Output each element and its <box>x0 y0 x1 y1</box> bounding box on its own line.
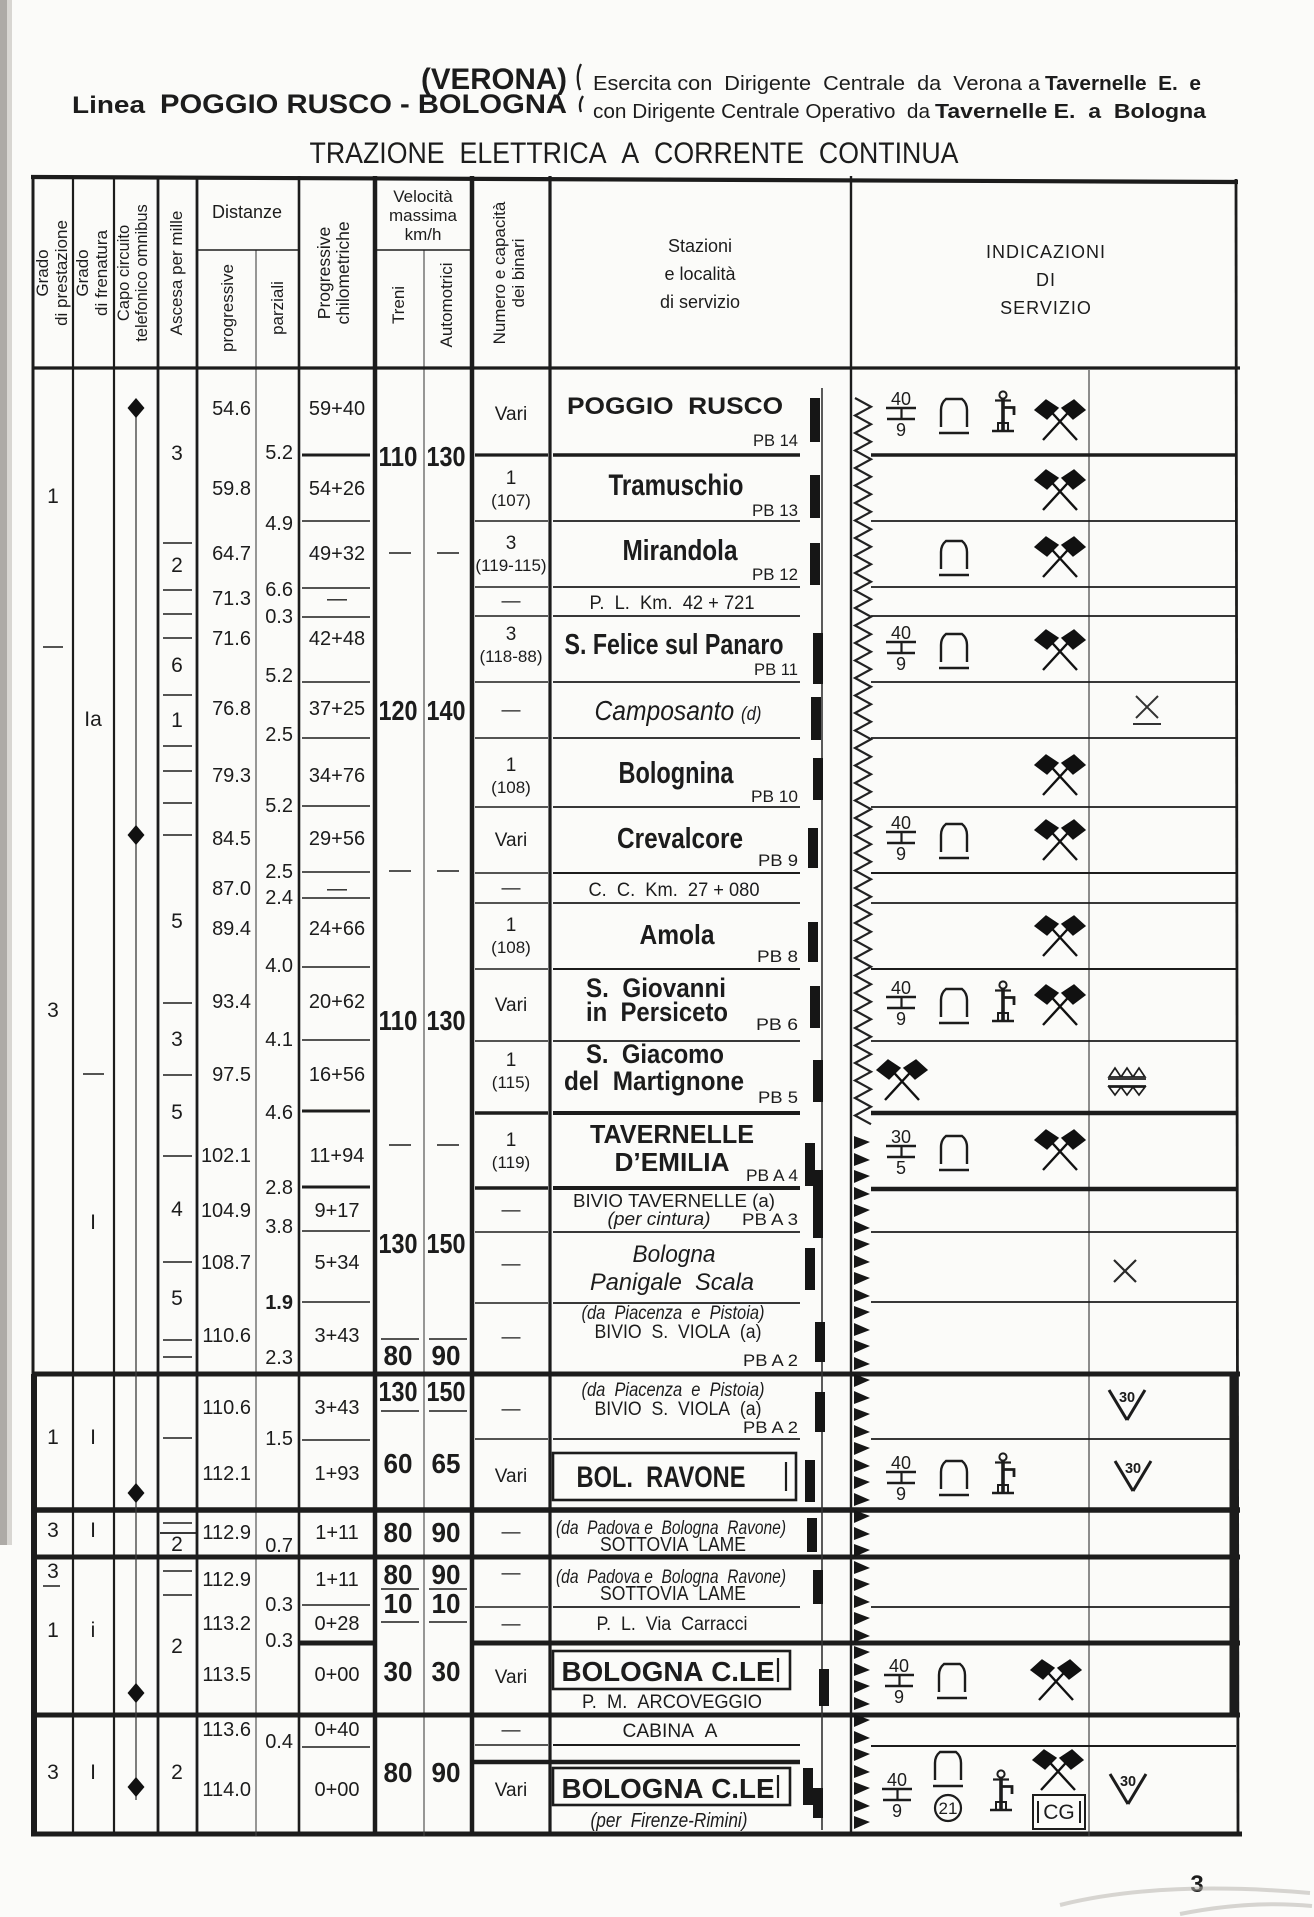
svg-text:i: i <box>91 1619 96 1642</box>
svg-text:Mirandola: Mirandola <box>623 535 739 567</box>
svg-text:113.2: 113.2 <box>202 1613 251 1635</box>
svg-text:130: 130 <box>427 441 466 472</box>
svg-text:(107): (107) <box>491 491 531 510</box>
svg-text:5: 5 <box>171 1287 183 1310</box>
svg-text:con Dirigente Centrale Operati: con Dirigente Centrale Operativo da <box>593 101 931 123</box>
svg-text:del Martignone: del Martignone <box>564 1066 744 1096</box>
svg-text:5+34: 5+34 <box>314 1252 359 1274</box>
svg-text:71.6: 71.6 <box>212 628 251 650</box>
svg-text:2: 2 <box>171 1635 183 1658</box>
svg-text:59.8: 59.8 <box>212 478 251 500</box>
svg-text:65: 65 <box>432 1448 461 1479</box>
svg-text:PB 12: PB 12 <box>752 565 798 584</box>
svg-text:0.3: 0.3 <box>265 606 293 628</box>
svg-text:—: — <box>502 1522 521 1543</box>
svg-text:CABINA A: CABINA A <box>623 1721 718 1742</box>
svg-text:4.0: 4.0 <box>265 955 293 977</box>
svg-text:—: — <box>502 700 521 721</box>
svg-text:4.9: 4.9 <box>265 513 293 535</box>
svg-text:PB 9: PB 9 <box>758 851 798 870</box>
svg-text:(119-115): (119-115) <box>475 556 546 575</box>
svg-text:2: 2 <box>171 1761 183 1784</box>
svg-text:10: 10 <box>384 1588 413 1619</box>
svg-text:PB 10: PB 10 <box>751 787 798 806</box>
svg-text:D’EMILIA: D’EMILIA <box>615 1147 730 1177</box>
svg-text:Stazionie localitàdi servizio: Stazionie localitàdi servizio <box>660 236 740 312</box>
svg-text:PB 11: PB 11 <box>754 660 798 679</box>
svg-text:34+76: 34+76 <box>309 765 365 787</box>
svg-text:TAVERNELLE: TAVERNELLE <box>590 1119 754 1149</box>
svg-text:PB 5: PB 5 <box>758 1088 798 1107</box>
svg-text:97.5: 97.5 <box>212 1064 251 1086</box>
svg-text:90: 90 <box>432 1559 461 1590</box>
svg-text:1: 1 <box>506 1050 517 1071</box>
svg-text:PB 14: PB 14 <box>753 431 798 450</box>
svg-text:84.5: 84.5 <box>212 828 251 850</box>
svg-text:1: 1 <box>506 915 517 936</box>
svg-text:90: 90 <box>432 1340 461 1371</box>
svg-text:parziali: parziali <box>268 281 287 335</box>
svg-text:(108): (108) <box>491 938 531 957</box>
svg-text:Tavernelle E. e: Tavernelle E. e <box>1045 73 1201 95</box>
svg-text:—: — <box>502 1399 521 1420</box>
svg-text:2.5: 2.5 <box>265 724 293 746</box>
svg-text:P. M. ARCOVEGGIO: P. M. ARCOVEGGIO <box>582 1692 762 1713</box>
svg-text:59+40: 59+40 <box>309 398 365 420</box>
svg-text:PB A 2: PB A 2 <box>743 1351 798 1370</box>
svg-text:I: I <box>90 1519 96 1542</box>
svg-text:I: I <box>90 1761 96 1784</box>
svg-text:1.9: 1.9 <box>265 1292 293 1314</box>
svg-text:20+62: 20+62 <box>309 991 365 1013</box>
svg-text:1: 1 <box>506 468 517 489</box>
svg-text:progressive: progressive <box>218 264 237 352</box>
svg-text:120: 120 <box>379 695 418 726</box>
svg-text:1: 1 <box>506 755 517 776</box>
svg-text:3: 3 <box>47 1761 59 1784</box>
svg-text:—: — <box>502 591 521 612</box>
svg-text:10: 10 <box>432 1588 461 1619</box>
svg-text:0.3: 0.3 <box>265 1630 293 1652</box>
svg-text:79.3: 79.3 <box>212 765 251 787</box>
svg-text:—: — <box>502 1254 521 1275</box>
svg-text:114.0: 114.0 <box>202 1779 251 1801</box>
svg-text:4.1: 4.1 <box>265 1029 293 1051</box>
svg-text:130: 130 <box>379 1228 418 1259</box>
svg-text:2.3: 2.3 <box>265 1347 293 1369</box>
svg-text:80: 80 <box>384 1757 413 1788</box>
svg-text:9+17: 9+17 <box>314 1200 359 1222</box>
svg-text:80: 80 <box>384 1517 413 1548</box>
svg-text:—: — <box>502 878 521 899</box>
svg-text:90: 90 <box>432 1517 461 1548</box>
svg-text:60: 60 <box>384 1448 413 1479</box>
svg-text:1: 1 <box>47 1619 59 1642</box>
svg-text:64.7: 64.7 <box>212 543 251 565</box>
svg-text:(per cintura): (per cintura) <box>608 1209 711 1229</box>
svg-text:30: 30 <box>384 1656 413 1687</box>
svg-text:5.2: 5.2 <box>265 442 293 464</box>
svg-text:102.1: 102.1 <box>201 1145 251 1167</box>
svg-text:3: 3 <box>47 1519 59 1542</box>
svg-text:—: — <box>502 1200 521 1221</box>
svg-text:112.9: 112.9 <box>202 1569 251 1591</box>
svg-text:4: 4 <box>171 1198 183 1221</box>
svg-text:(per Firenze-Rimini): (per Firenze-Rimini) <box>591 1810 748 1832</box>
svg-text:29+56: 29+56 <box>309 828 365 850</box>
svg-text:Vari: Vari <box>495 830 527 851</box>
svg-text:(108): (108) <box>491 778 531 797</box>
svg-text:4.6: 4.6 <box>265 1102 293 1124</box>
svg-text:BIVIO S. VIOLA (a): BIVIO S. VIOLA (a) <box>595 1399 762 1420</box>
svg-text:110.6: 110.6 <box>202 1325 251 1347</box>
svg-text:PB A 4: PB A 4 <box>746 1166 798 1185</box>
svg-text:Automotrici: Automotrici <box>437 262 456 347</box>
svg-text:P. L. Via Carracci: P. L. Via Carracci <box>597 1614 748 1635</box>
svg-text:113.6: 113.6 <box>202 1719 251 1741</box>
svg-text:24+66: 24+66 <box>309 918 365 940</box>
svg-text:49+32: 49+32 <box>309 543 365 565</box>
svg-text:S. Giacomo: S. Giacomo <box>586 1039 724 1069</box>
svg-text:1: 1 <box>506 1130 517 1151</box>
svg-text:POGGIO RUSCO - BOLOGNA: POGGIO RUSCO - BOLOGNA <box>160 89 567 119</box>
svg-text:3: 3 <box>1190 1871 1203 1898</box>
svg-text:113.5: 113.5 <box>202 1664 251 1686</box>
svg-text:3: 3 <box>171 1028 183 1051</box>
svg-text:BIVIO TAVERNELLE (a): BIVIO TAVERNELLE (a) <box>573 1191 775 1211</box>
svg-text:Tramuschio: Tramuschio <box>609 469 744 502</box>
svg-text:130: 130 <box>427 1005 466 1036</box>
svg-text:(da Piacenza e Pistoia): (da Piacenza e Pistoia) <box>582 1303 765 1324</box>
svg-text:(da Piacenza e Pistoia): (da Piacenza e Pistoia) <box>582 1380 765 1401</box>
svg-text:Esercita con Dirigente Centr: Esercita con Dirigente Centrale da Veron… <box>593 73 1041 95</box>
svg-text:1.5: 1.5 <box>265 1428 293 1450</box>
svg-text:—: — <box>327 878 347 900</box>
svg-text:76.8: 76.8 <box>212 698 251 720</box>
svg-text:TRAZIONE ELETTRICA A CORREN: TRAZIONE ELETTRICA A CORRENTE CONTINUA <box>310 137 959 170</box>
svg-text:5.2: 5.2 <box>265 795 293 817</box>
svg-text:1+93: 1+93 <box>314 1463 359 1485</box>
svg-text:54+26: 54+26 <box>309 478 365 500</box>
svg-text:Vari: Vari <box>495 995 527 1016</box>
svg-text:140: 140 <box>427 695 466 726</box>
svg-text:I: I <box>90 1211 96 1234</box>
svg-text:6: 6 <box>171 654 183 677</box>
svg-text:87.0: 87.0 <box>212 878 251 900</box>
svg-text:112.1: 112.1 <box>202 1463 251 1485</box>
svg-text:2.5: 2.5 <box>265 861 293 883</box>
svg-text:1: 1 <box>47 485 59 508</box>
svg-text:C. C. Km. 27 + 080: C. C. Km. 27 + 080 <box>589 880 760 901</box>
svg-text:110: 110 <box>379 1005 418 1036</box>
svg-text:1+11: 1+11 <box>315 1522 359 1544</box>
svg-text:3+43: 3+43 <box>314 1325 359 1347</box>
svg-text:Bolognina: Bolognina <box>619 755 735 790</box>
svg-text:BIVIO S. VIOLA (a): BIVIO S. VIOLA (a) <box>595 1322 762 1343</box>
svg-text:PB 13: PB 13 <box>752 501 798 520</box>
svg-text:Linea: Linea <box>72 92 146 119</box>
svg-text:Amola: Amola <box>640 919 715 950</box>
svg-text:Panigale Scala: Panigale Scala <box>590 1269 754 1296</box>
svg-text:PB A 3: PB A 3 <box>742 1210 798 1229</box>
svg-text:5.2: 5.2 <box>265 665 293 687</box>
svg-text:110: 110 <box>379 441 418 472</box>
svg-text:Progressivechilometriche: Progressivechilometriche <box>314 221 353 324</box>
svg-text:I: I <box>90 1426 96 1449</box>
svg-text:3: 3 <box>171 442 183 465</box>
svg-text:3: 3 <box>506 624 517 645</box>
svg-text:Treni: Treni <box>389 286 408 324</box>
svg-text:in Persiceto: in Persiceto <box>586 997 728 1027</box>
svg-text:2.8: 2.8 <box>265 1177 293 1199</box>
svg-text:42+48: 42+48 <box>309 628 365 650</box>
svg-text:BOLOGNA C.LE: BOLOGNA C.LE <box>562 1656 775 1687</box>
svg-text:—: — <box>327 588 347 610</box>
svg-text:(118-88): (118-88) <box>480 647 543 666</box>
svg-text:BOLOGNA C.LE: BOLOGNA C.LE <box>562 1773 775 1804</box>
svg-text:Vari: Vari <box>495 404 527 425</box>
svg-text:SOTTOVIA LAME: SOTTOVIA LAME <box>600 1534 746 1556</box>
svg-text:SOTTOVIA LAME: SOTTOVIA LAME <box>600 1583 746 1605</box>
svg-text:150: 150 <box>427 1376 466 1407</box>
svg-text:3: 3 <box>47 999 59 1022</box>
svg-text:108.7: 108.7 <box>201 1252 251 1274</box>
svg-text:Bologna: Bologna <box>633 1241 716 1268</box>
svg-text:POGGIO RUSCO: POGGIO RUSCO <box>567 393 783 420</box>
svg-text:89.4: 89.4 <box>212 918 251 940</box>
svg-text:P. L. Km. 42 + 721: P. L. Km. 42 + 721 <box>590 593 755 614</box>
svg-text:—: — <box>502 1614 521 1635</box>
svg-text:90: 90 <box>432 1757 461 1788</box>
svg-text:0.4: 0.4 <box>265 1731 293 1753</box>
svg-text:Tavernelle E. a Bologna: Tavernelle E. a Bologna <box>935 101 1207 123</box>
svg-text:3+43: 3+43 <box>314 1397 359 1419</box>
svg-text:5: 5 <box>171 1101 183 1124</box>
svg-text:0.3: 0.3 <box>265 1594 293 1616</box>
svg-text:0+00: 0+00 <box>314 1664 359 1686</box>
svg-text:37+25: 37+25 <box>309 698 365 720</box>
svg-text:54.6: 54.6 <box>212 398 251 420</box>
svg-text:2: 2 <box>171 554 183 577</box>
svg-text:16+56: 16+56 <box>309 1064 365 1086</box>
svg-text:3.8: 3.8 <box>265 1216 293 1238</box>
svg-text:—: — <box>502 1327 521 1348</box>
svg-text:110.6: 110.6 <box>202 1397 251 1419</box>
svg-text:Iа: Iа <box>84 708 102 731</box>
svg-text:PB 8: PB 8 <box>757 947 798 966</box>
svg-text:PB 6: PB 6 <box>756 1015 798 1034</box>
svg-text:80: 80 <box>384 1340 413 1371</box>
svg-text:0+28: 0+28 <box>314 1613 359 1635</box>
svg-text:1: 1 <box>47 1426 59 1449</box>
svg-text:30: 30 <box>432 1656 461 1687</box>
svg-text:130: 130 <box>379 1376 418 1407</box>
svg-text:2.4: 2.4 <box>265 887 293 909</box>
svg-text:104.9: 104.9 <box>201 1200 251 1222</box>
svg-text:Vari: Vari <box>495 1466 527 1487</box>
svg-text:112.9: 112.9 <box>202 1522 251 1544</box>
svg-text:Vari: Vari <box>495 1780 527 1801</box>
svg-text:5: 5 <box>171 910 183 933</box>
svg-text:6.6: 6.6 <box>265 579 293 601</box>
svg-text:S. Felice sul Panaro: S. Felice sul Panaro <box>565 629 784 661</box>
svg-text:11+94: 11+94 <box>310 1145 365 1167</box>
svg-text:(115): (115) <box>492 1073 530 1092</box>
svg-text:3: 3 <box>506 533 517 554</box>
svg-text:3: 3 <box>47 1560 59 1583</box>
svg-text:Ascesa per mille: Ascesa per mille <box>167 211 186 336</box>
svg-text:93.4: 93.4 <box>212 991 251 1013</box>
svg-text:150: 150 <box>427 1228 466 1259</box>
svg-text:Distanze: Distanze <box>212 202 282 222</box>
svg-text:0.7: 0.7 <box>265 1535 293 1557</box>
svg-text:1: 1 <box>171 709 183 732</box>
svg-text:2: 2 <box>171 1533 183 1556</box>
svg-text:PB A 2: PB A 2 <box>743 1418 798 1437</box>
svg-text:—: — <box>502 1563 521 1584</box>
svg-text:0+40: 0+40 <box>314 1719 359 1741</box>
svg-text:BOL. RAVONE: BOL. RAVONE <box>577 1461 746 1494</box>
svg-text:1+11: 1+11 <box>315 1569 359 1591</box>
svg-text:Camposanto (d): Camposanto (d) <box>595 695 762 726</box>
svg-text:0+00: 0+00 <box>314 1779 359 1801</box>
svg-text:—: — <box>502 1720 521 1741</box>
svg-text:Crevalcore: Crevalcore <box>617 823 743 855</box>
svg-text:Vari: Vari <box>495 1667 527 1688</box>
svg-text:71.3: 71.3 <box>212 588 251 610</box>
svg-text:80: 80 <box>384 1559 413 1590</box>
svg-text:(119): (119) <box>492 1153 530 1172</box>
